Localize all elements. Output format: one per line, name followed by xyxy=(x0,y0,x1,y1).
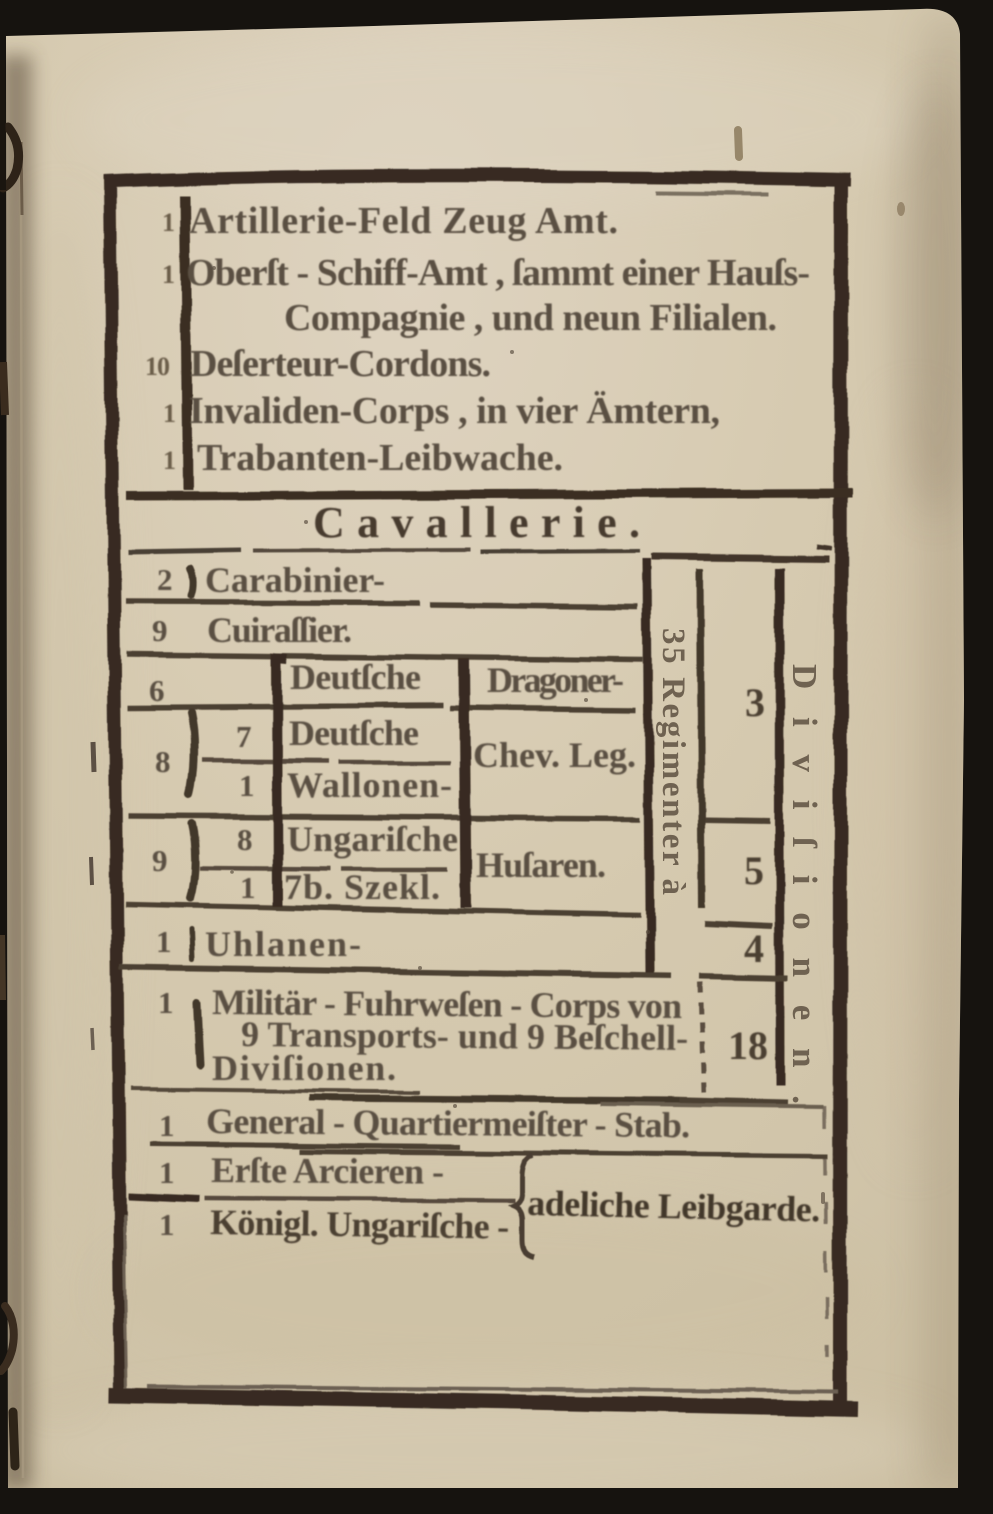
svg-text:Trabanten-Leibwache.: Trabanten-Leibwache. xyxy=(197,437,563,479)
svg-text:Carabinier-: Carabinier- xyxy=(205,560,385,600)
svg-text:9: 9 xyxy=(152,613,168,648)
svg-text:35 Regimenter à: 35 Regimenter à xyxy=(655,628,691,895)
svg-text:Invaliden-Corps , in vier Ämte: Invaliden-Corps , in vier Ämtern, xyxy=(189,390,720,432)
svg-text:1: 1 xyxy=(240,870,256,905)
svg-text:3: 3 xyxy=(745,680,765,725)
svg-text:Deſerteur-Cordons.: Deſerteur-Cordons. xyxy=(190,343,491,385)
svg-text:1: 1 xyxy=(162,260,175,289)
svg-text:1: 1 xyxy=(159,1207,175,1242)
svg-text:6: 6 xyxy=(149,673,165,708)
svg-text:1: 1 xyxy=(159,1108,175,1143)
svg-text:Ungariſche: Ungariſche xyxy=(287,819,458,859)
svg-text:Dragoner-: Dragoner- xyxy=(487,660,624,700)
svg-text:8: 8 xyxy=(237,822,253,857)
svg-text:1: 1 xyxy=(163,399,176,428)
svg-text:5: 5 xyxy=(744,848,764,893)
svg-text:7b. Szekl.: 7b. Szekl. xyxy=(284,867,440,907)
svg-text:Huſaren.: Huſaren. xyxy=(476,845,606,885)
svg-text:1: 1 xyxy=(162,208,175,237)
svg-text:Erſte Arcieren -: Erſte Arcieren - xyxy=(211,1150,444,1192)
svg-text:1: 1 xyxy=(159,1155,175,1190)
svg-text:8: 8 xyxy=(155,744,171,779)
svg-text:Diviſionen.: Diviſionen. xyxy=(212,1048,396,1088)
svg-text:1: 1 xyxy=(156,924,172,959)
svg-text:Cuiraſſier.: Cuiraſſier. xyxy=(207,610,352,650)
svg-text:Deutſche: Deutſche xyxy=(289,713,419,753)
svg-text:0: 0 xyxy=(157,352,170,381)
svg-text:2: 2 xyxy=(157,562,173,597)
svg-text:Wallonen-: Wallonen- xyxy=(287,765,452,805)
svg-text:1: 1 xyxy=(158,985,174,1020)
svg-text:1: 1 xyxy=(239,768,255,803)
svg-text:9: 9 xyxy=(152,843,168,878)
svg-text:Königl. Ungariſche -: Königl. Ungariſche - xyxy=(210,1202,510,1247)
svg-text:Compagnie , und neun Filialen.: Compagnie , und neun Filialen. xyxy=(284,297,777,339)
svg-text:4: 4 xyxy=(744,926,764,971)
svg-text:Oberſt - Schiff-Amt , ſammt ei: Oberſt - Schiff-Amt , ſammt einer Hauſs- xyxy=(186,252,810,294)
svg-text:18: 18 xyxy=(728,1023,768,1068)
svg-text:Uhlanen-: Uhlanen- xyxy=(205,924,361,964)
svg-text:Deutſche: Deutſche xyxy=(290,657,421,697)
svg-text:7: 7 xyxy=(236,719,252,754)
svg-text:1: 1 xyxy=(163,446,176,475)
svg-text:adeliche Leibgarde.: adeliche Leibgarde. xyxy=(527,1183,821,1230)
svg-text:Artillerie-Feld Zeug Amt.: Artillerie-Feld Zeug Amt. xyxy=(189,200,618,242)
svg-text:Chev. Leg.: Chev. Leg. xyxy=(473,735,636,775)
svg-text:General - Quartiermeiſter - St: General - Quartiermeiſter - Stab. xyxy=(206,1101,690,1145)
